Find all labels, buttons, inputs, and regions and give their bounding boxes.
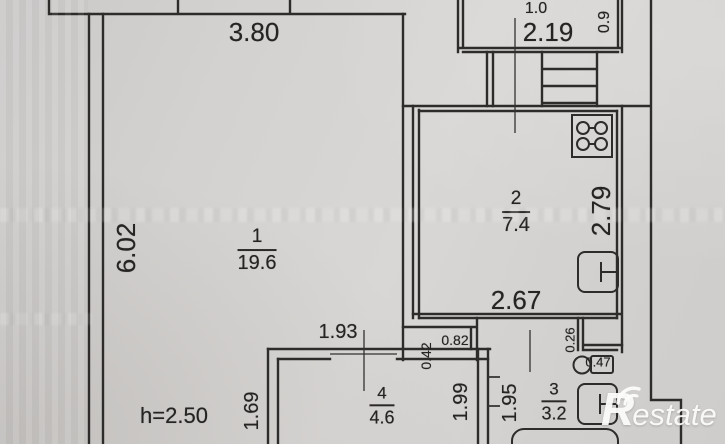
dim-kitchen-width: 2.67 [491, 287, 542, 313]
room-4-area: 4.6 [369, 406, 394, 428]
floor-plan-drawing [0, 0, 725, 444]
room-4-label: 4 4.6 [369, 384, 394, 427]
dim-jog-width: 0.82 [441, 333, 468, 347]
dim-bath-height: 1.95 [500, 384, 520, 423]
dim-top-width: 3.80 [229, 19, 280, 45]
dim-hall-right-height: 1.99 [451, 383, 471, 422]
room-2-area: 7.4 [502, 213, 530, 237]
room-3-label: 3 3.2 [541, 380, 566, 423]
kitchen-top-wall [403, 106, 650, 111]
dim-balcony-depth: 0.9 [597, 11, 613, 33]
dim-door-width: 1.93 [319, 322, 358, 342]
room-1-number: 1 [238, 227, 277, 251]
hall-left-wall [268, 349, 278, 444]
floor-plan: 3.80 6.02 1.93 1.69 h=2.50 0.42 0.82 1.9… [0, 0, 725, 444]
stove-icon [572, 115, 612, 157]
kitchen-sink-icon [578, 252, 618, 292]
dim-hall-left-height: 1.69 [242, 392, 262, 431]
dim-balcony-width: 2.19 [523, 19, 574, 45]
hall-right-wall [478, 349, 488, 444]
balcony-window [542, 52, 597, 106]
duct-wall [578, 318, 622, 350]
restate-swoosh-icon [615, 385, 645, 407]
room-3-area: 3.2 [541, 402, 566, 424]
ceiling-height: h=2.50 [140, 405, 208, 427]
dim-duct-depth: 0.26 [564, 327, 577, 352]
room-2-label: 2 7.4 [502, 189, 530, 237]
room-4-number: 4 [369, 384, 394, 406]
kitchen-left-wall [413, 106, 419, 318]
dim-jog-depth: 0.42 [419, 342, 433, 369]
room-3-number: 3 [541, 380, 566, 402]
room-1-label: 1 19.6 [238, 227, 277, 275]
dim-duct-width: 0.47 [585, 356, 610, 369]
balcony-door-jamb [487, 52, 493, 106]
top-wall [49, 0, 405, 14]
watermark-restate: R estate [601, 391, 717, 429]
dim-room1-height: 6.02 [113, 223, 139, 274]
dim-balcony-partial: 1.0 [525, 1, 547, 17]
room-2-number: 2 [502, 189, 530, 213]
left-wall [89, 14, 103, 444]
right-outer-wall [651, 0, 681, 444]
room-1-area: 19.6 [238, 251, 277, 275]
dim-kitchen-height: 2.79 [588, 186, 614, 237]
